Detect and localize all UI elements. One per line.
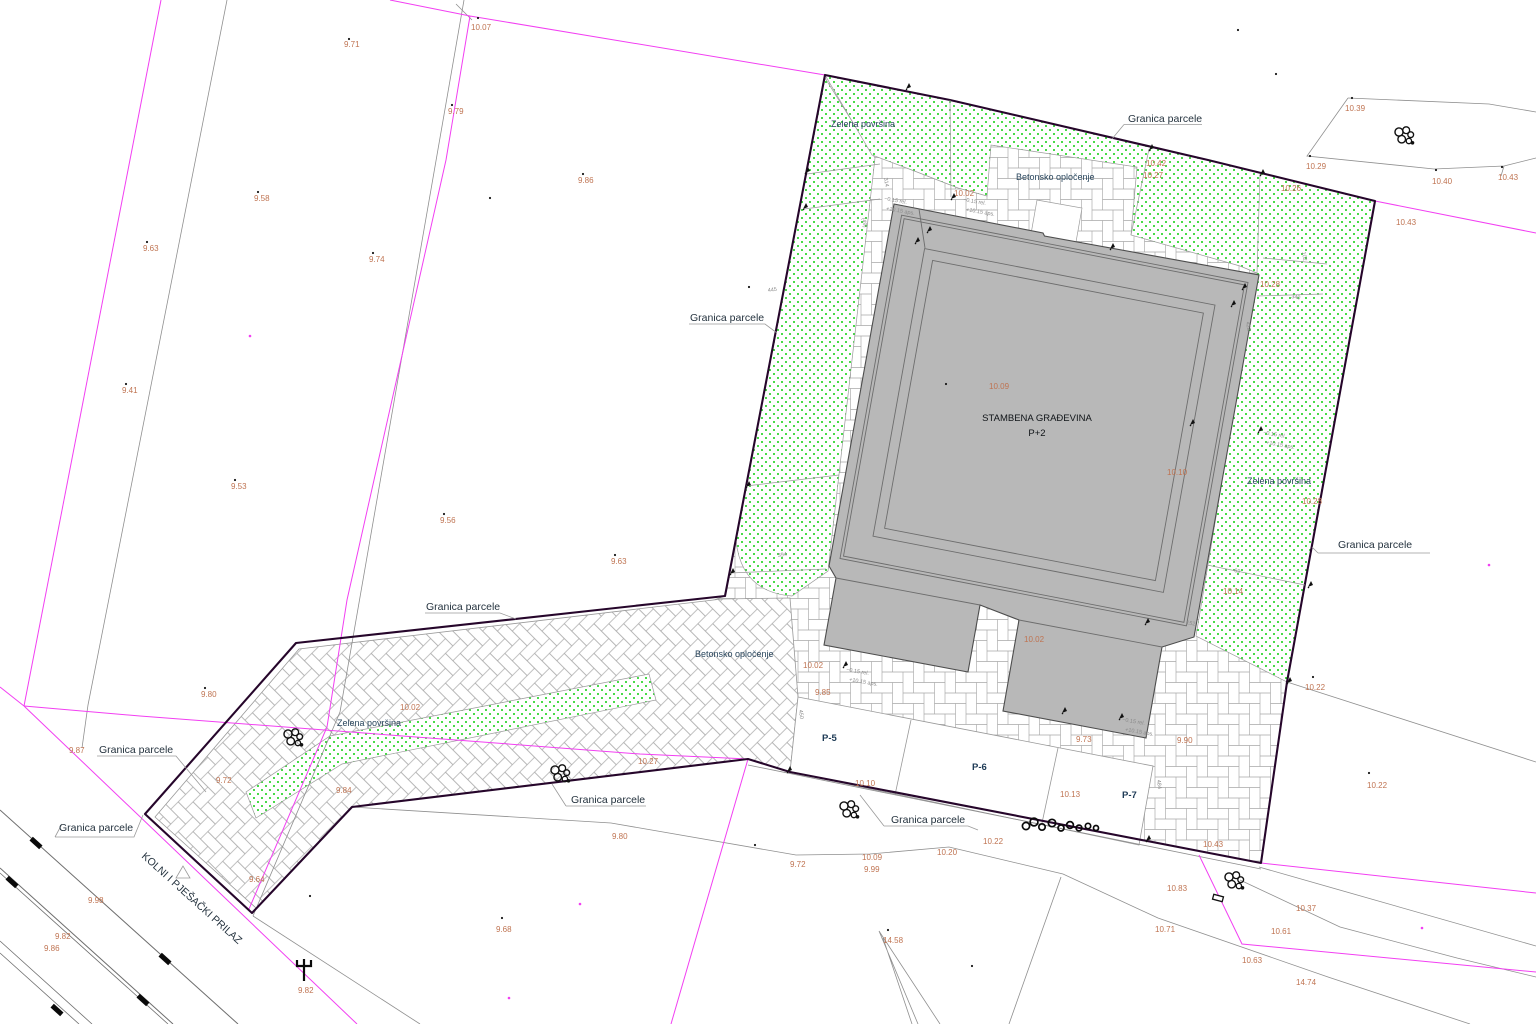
svg-text:9.98: 9.98 — [88, 896, 104, 905]
svg-text:10.43: 10.43 — [1396, 218, 1417, 227]
svg-text:P-6: P-6 — [972, 762, 987, 773]
svg-text:10.26: 10.26 — [1281, 184, 1302, 193]
svg-text:14.58: 14.58 — [883, 936, 904, 945]
svg-text:484: 484 — [1155, 780, 1162, 790]
svg-text:9.80: 9.80 — [201, 690, 217, 699]
svg-text:10.83: 10.83 — [1167, 884, 1188, 893]
svg-text:10.61: 10.61 — [1271, 927, 1292, 936]
svg-text:10.28: 10.28 — [1260, 280, 1281, 289]
svg-text:10.02: 10.02 — [1024, 635, 1045, 644]
svg-text:10.20: 10.20 — [937, 848, 958, 857]
svg-text:Granica parcele: Granica parcele — [99, 744, 173, 756]
svg-text:9.99: 9.99 — [864, 865, 880, 874]
svg-text:10.22: 10.22 — [983, 837, 1004, 846]
svg-text:10.71: 10.71 — [1155, 925, 1176, 934]
svg-text:10.43: 10.43 — [1498, 173, 1519, 182]
svg-text:10.63: 10.63 — [1242, 956, 1263, 965]
svg-text:P-5: P-5 — [822, 733, 838, 744]
svg-text:10.40: 10.40 — [1432, 177, 1453, 186]
svg-text:STAMBENA GRAĐEVINA: STAMBENA GRAĐEVINA — [982, 413, 1092, 424]
svg-text:P-7: P-7 — [1122, 790, 1137, 801]
svg-text:Zelena površina: Zelena površina — [1247, 476, 1311, 486]
svg-text:Granica parcele: Granica parcele — [426, 601, 500, 613]
svg-text:9.73: 9.73 — [1076, 735, 1092, 744]
svg-text:9.41: 9.41 — [122, 386, 138, 395]
svg-text:9.86: 9.86 — [44, 944, 60, 953]
svg-text:9.63: 9.63 — [611, 557, 627, 566]
svg-text:394: 394 — [777, 552, 787, 559]
svg-text:445: 445 — [767, 287, 777, 294]
svg-text:9.68: 9.68 — [496, 925, 512, 934]
svg-text:Zelena površina: Zelena površina — [831, 119, 895, 129]
svg-text:9.71: 9.71 — [344, 40, 360, 49]
svg-text:10.10: 10.10 — [855, 779, 876, 788]
svg-text:Granica parcele: Granica parcele — [690, 312, 764, 324]
svg-text:Granica parcele: Granica parcele — [891, 814, 965, 826]
svg-text:10.39: 10.39 — [1345, 104, 1366, 113]
svg-text:9.87: 9.87 — [69, 746, 85, 755]
svg-text:Betonsko opločenje: Betonsko opločenje — [695, 649, 774, 659]
svg-text:10.29: 10.29 — [1306, 162, 1327, 171]
svg-text:10.10: 10.10 — [1167, 468, 1188, 477]
svg-text:9.53: 9.53 — [231, 482, 247, 491]
svg-text:14.74: 14.74 — [1296, 978, 1317, 987]
svg-text:9.79: 9.79 — [448, 107, 464, 116]
svg-text:Betonsko opločenje: Betonsko opločenje — [1016, 172, 1095, 182]
svg-text:9.80: 9.80 — [612, 832, 628, 841]
svg-text:9.64: 9.64 — [249, 875, 265, 884]
svg-text:9.84: 9.84 — [336, 786, 352, 795]
svg-text:Granica parcele: Granica parcele — [1128, 113, 1202, 125]
svg-text:10.13: 10.13 — [1060, 790, 1081, 799]
svg-text:9.82: 9.82 — [55, 932, 71, 941]
svg-text:10.27: 10.27 — [638, 757, 659, 766]
svg-text:450: 450 — [797, 710, 804, 720]
svg-text:10.28: 10.28 — [1302, 497, 1323, 506]
svg-text:P+2: P+2 — [1028, 428, 1045, 439]
svg-text:9.85: 9.85 — [815, 688, 831, 697]
svg-text:9.74: 9.74 — [369, 255, 385, 264]
svg-text:9.72: 9.72 — [216, 776, 232, 785]
svg-text:10.43: 10.43 — [1203, 840, 1224, 849]
svg-text:10.22: 10.22 — [1305, 683, 1326, 692]
svg-text:9.90: 9.90 — [1177, 736, 1193, 745]
svg-text:10.02: 10.02 — [400, 703, 421, 712]
svg-text:9.63: 9.63 — [143, 244, 159, 253]
svg-text:Granica parcele: Granica parcele — [1338, 539, 1412, 551]
svg-text:9.56: 9.56 — [440, 516, 456, 525]
svg-text:9.86: 9.86 — [578, 176, 594, 185]
svg-text:10.02: 10.02 — [803, 661, 824, 670]
svg-text:9.72: 9.72 — [790, 860, 806, 869]
svg-text:10.07: 10.07 — [471, 23, 492, 32]
svg-text:10.14: 10.14 — [1223, 587, 1244, 596]
svg-text:Granica parcele: Granica parcele — [59, 822, 133, 834]
svg-text:9.82: 9.82 — [298, 986, 314, 995]
svg-text:10.22: 10.22 — [1367, 781, 1388, 790]
svg-text:10.09: 10.09 — [989, 382, 1010, 391]
svg-text:10.27: 10.27 — [1143, 171, 1164, 180]
svg-text:9.58: 9.58 — [254, 194, 270, 203]
svg-text:10.42: 10.42 — [1146, 159, 1167, 168]
svg-text:Zelena površina: Zelena površina — [337, 718, 401, 728]
svg-text:10.37: 10.37 — [1296, 904, 1317, 913]
svg-text:10.09: 10.09 — [862, 853, 883, 862]
svg-text:Granica parcele: Granica parcele — [571, 794, 645, 806]
